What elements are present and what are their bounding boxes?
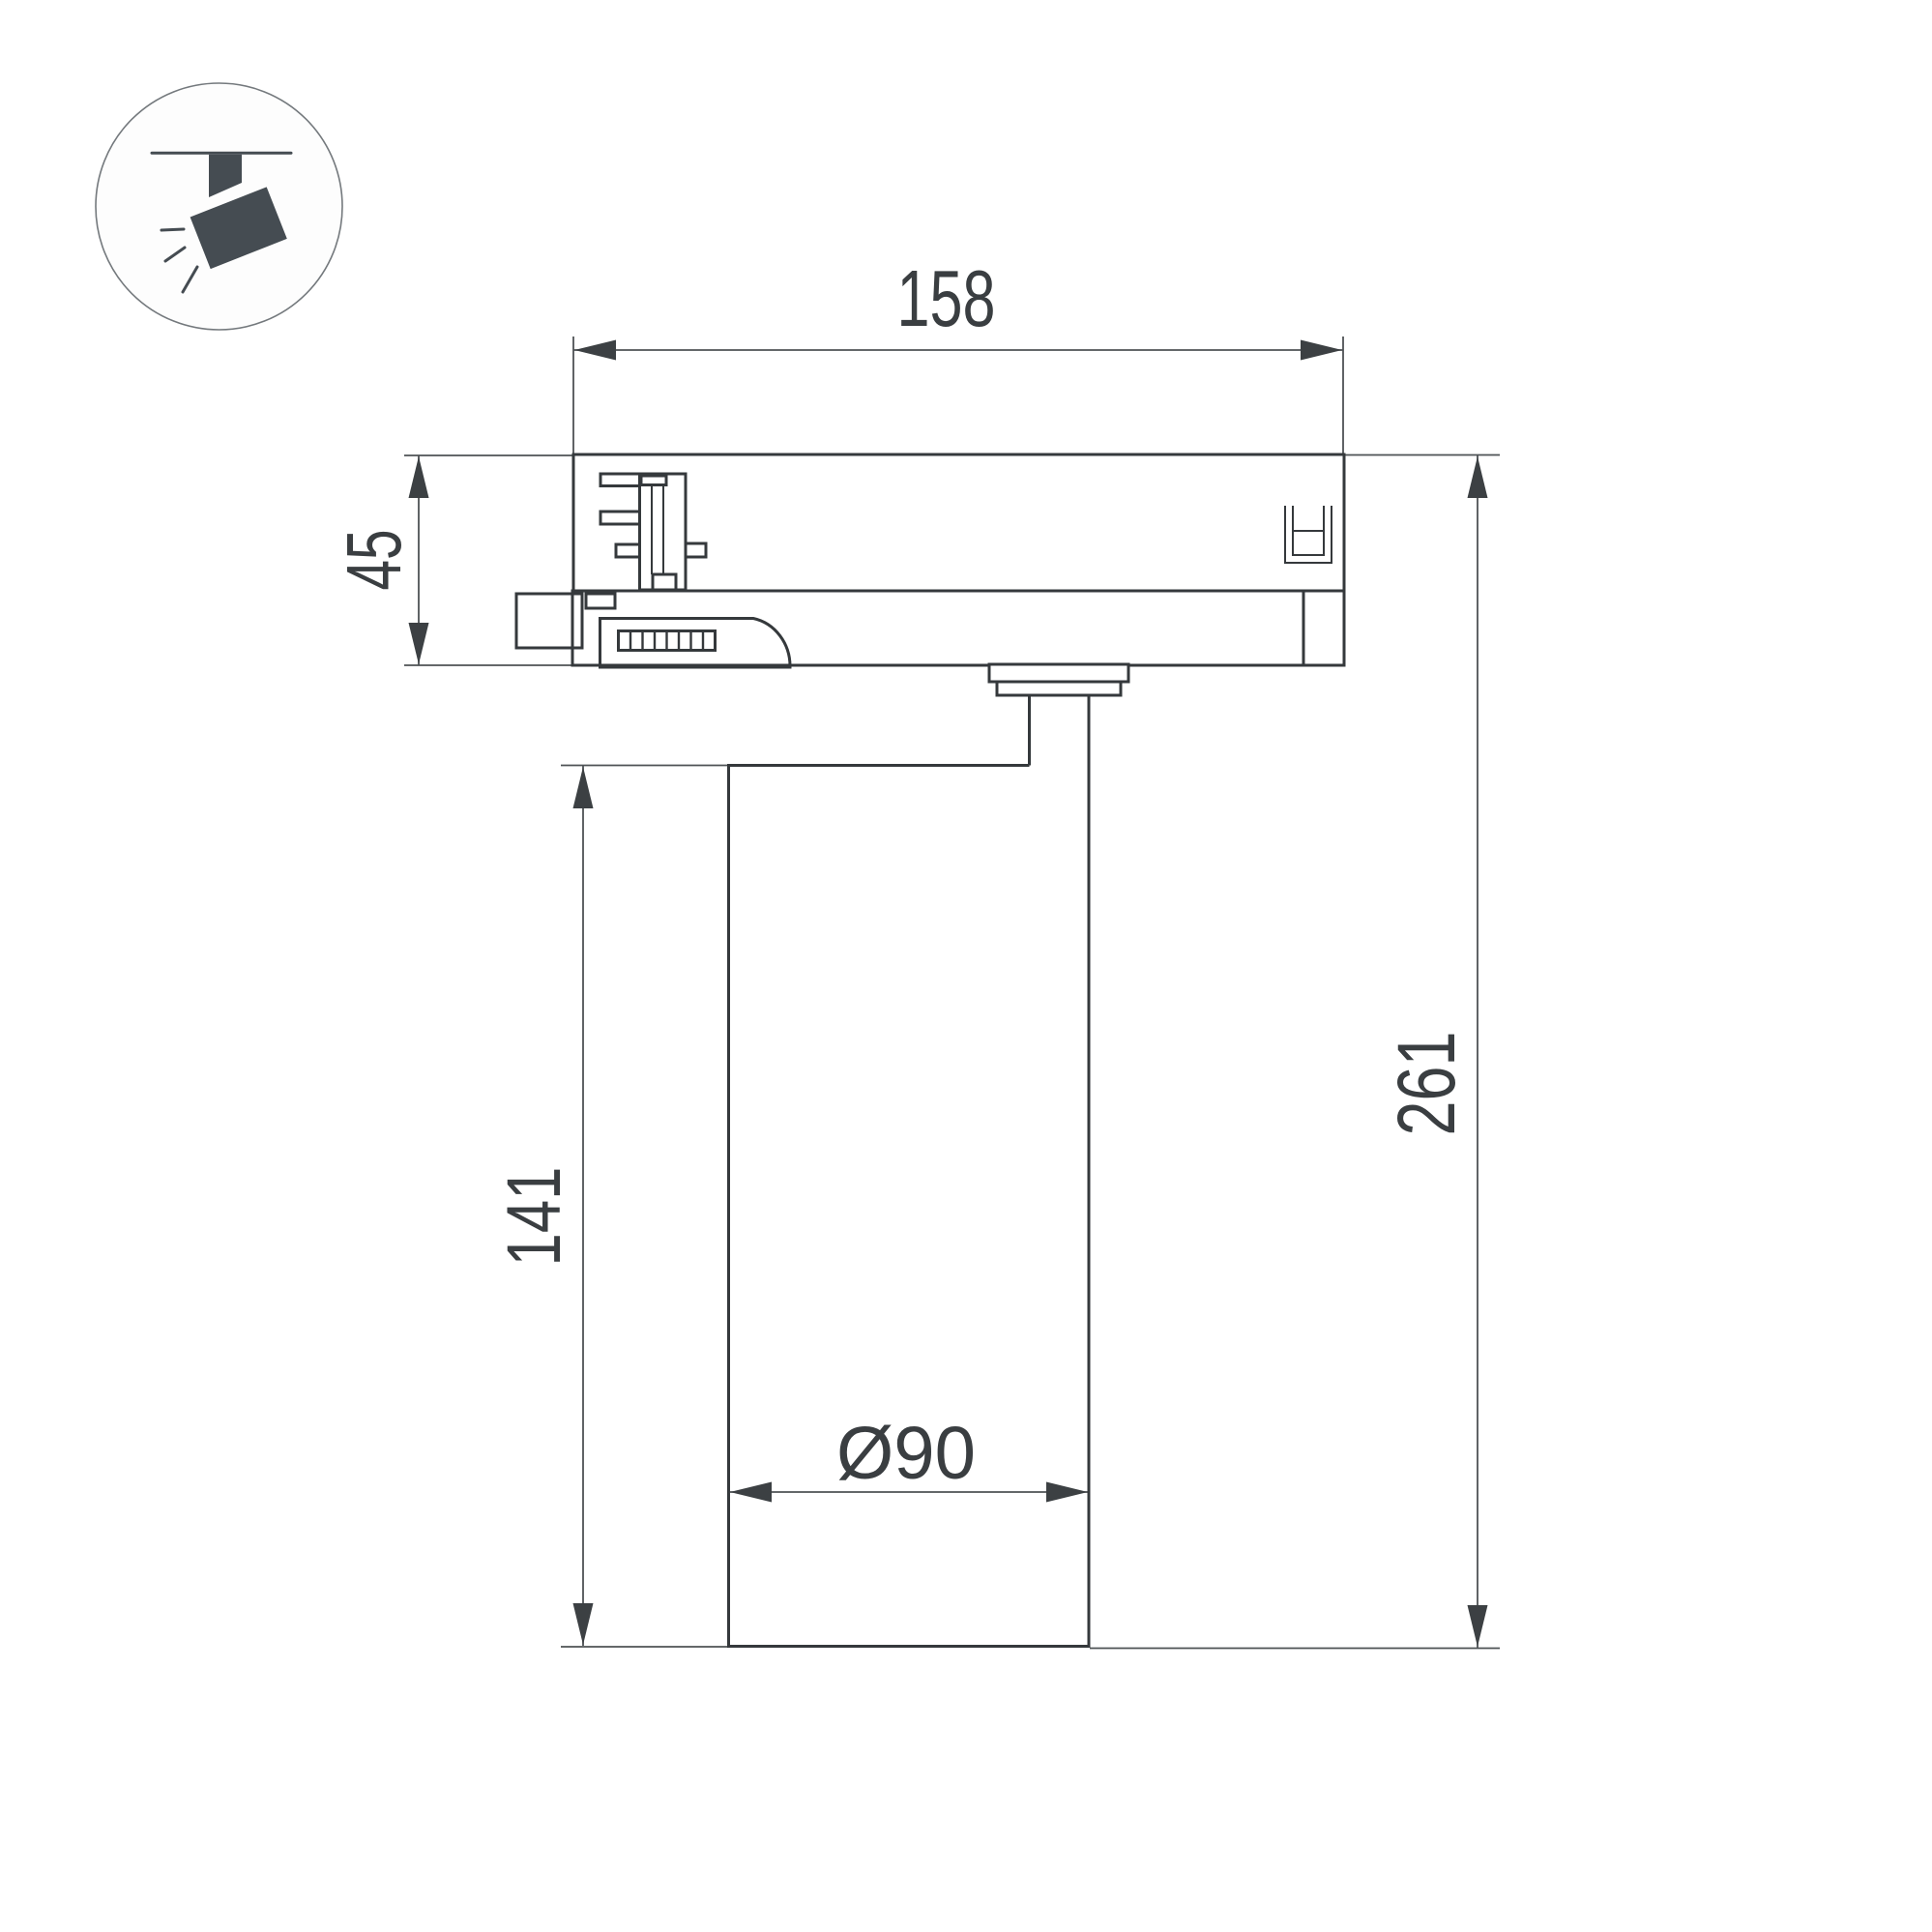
svg-text:Ø90: Ø90 (836, 1412, 976, 1495)
svg-text:261: 261 (1381, 1032, 1472, 1136)
svg-text:158: 158 (897, 253, 996, 343)
svg-text:141: 141 (490, 1167, 576, 1267)
svg-text:45: 45 (331, 530, 417, 591)
